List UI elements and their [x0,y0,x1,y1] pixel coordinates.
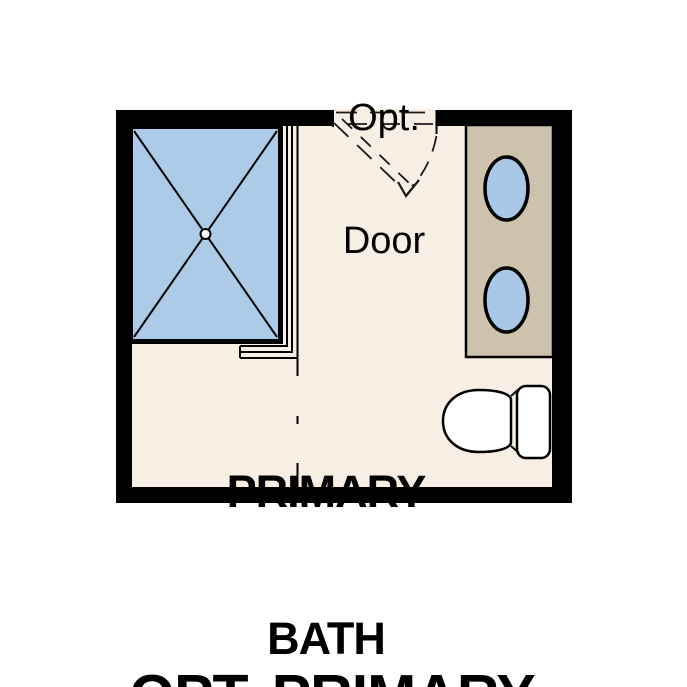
sink-icon [485,157,528,220]
optional-door-label-line2: Door [322,221,446,262]
sink-icon [485,268,528,332]
plan-caption: OPT. PRIMARY WALK-IN SHOWER [12,531,652,687]
optional-door-label: Opt. Door [322,16,446,344]
walk-in-shower [131,127,281,342]
vanity-with-two-sinks [466,125,553,357]
optional-door-label-line1: Opt. [322,98,446,139]
room-name-line1: PRIMARY [126,467,526,516]
floorplan-page: Opt. Door PRIMARY BATH OPT. PRIMARY WALK… [0,0,687,687]
shower-drain-icon [201,229,211,239]
plan-caption-line1: OPT. PRIMARY [12,663,652,687]
